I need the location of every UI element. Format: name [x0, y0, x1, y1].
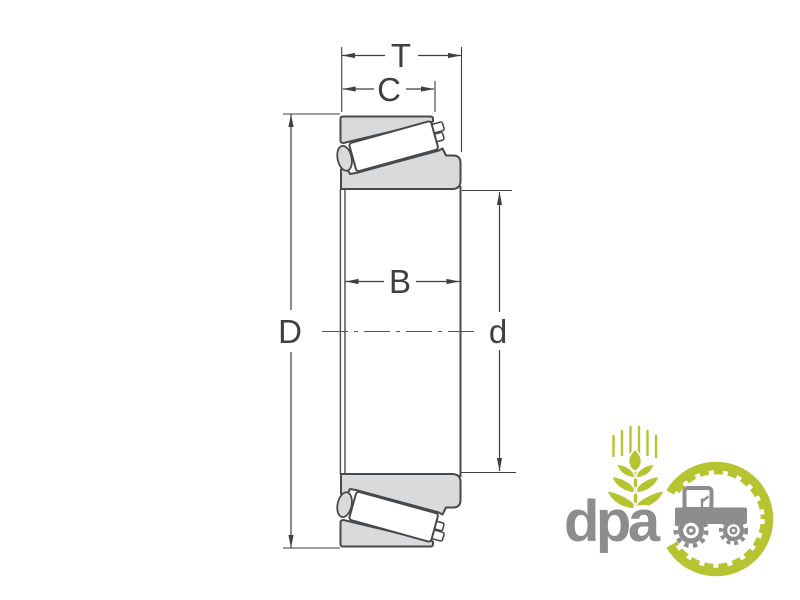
arrowhead-down — [288, 535, 293, 548]
brand-text: dpa — [564, 489, 661, 554]
dimension-C: C — [343, 71, 434, 108]
tractor-front-wheel — [721, 518, 746, 543]
bore-silhouette-lines — [340, 186, 460, 477]
arrowhead-left — [342, 53, 355, 58]
arrowhead-left — [343, 86, 356, 91]
arrowhead-up — [497, 192, 502, 205]
tractor-icon — [675, 488, 747, 546]
dimension-B: B — [346, 263, 460, 300]
dimension-d: d — [489, 192, 507, 471]
arrowhead-up — [288, 114, 293, 127]
label-outer-diameter: D — [278, 313, 302, 350]
label-total-width: T — [391, 37, 411, 74]
label-bore-diameter: d — [489, 313, 507, 350]
arrowhead-down — [497, 458, 502, 471]
arrowhead-left — [346, 279, 359, 284]
bearing-drawing-page: T C B D d — [0, 0, 800, 600]
bearing-diagram: T C B D d — [0, 0, 800, 600]
label-inner-ring-width: B — [389, 263, 411, 300]
arrowhead-right — [421, 86, 434, 91]
bearing-top-half — [335, 117, 460, 190]
arrowhead-right — [448, 53, 461, 58]
dimension-D: D — [278, 114, 302, 548]
arrowhead-right — [447, 279, 460, 284]
dimension-T: T — [342, 37, 461, 74]
dpa-logo: dpa — [564, 427, 767, 570]
label-cup-width: C — [377, 71, 401, 108]
bearing-bottom-half — [335, 474, 460, 547]
